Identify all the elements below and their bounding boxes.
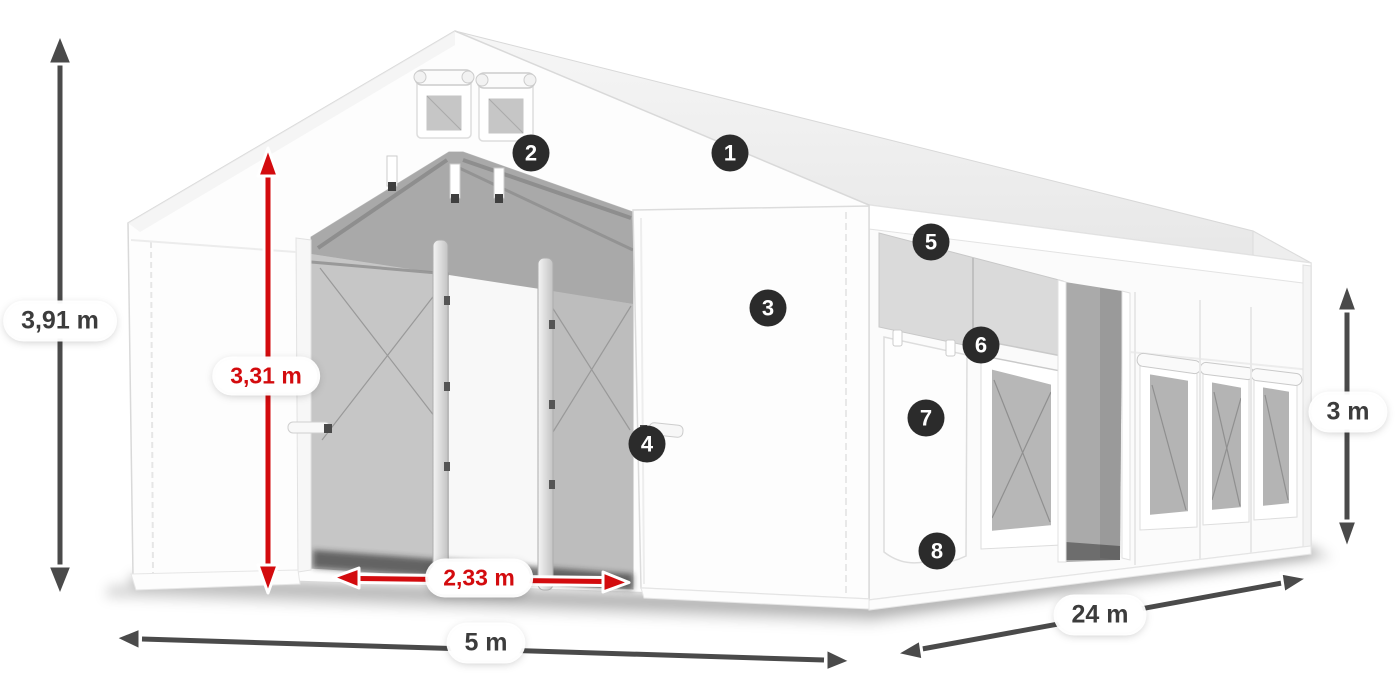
- gable-vent-left: [414, 70, 474, 138]
- side-doorway-open: [1058, 280, 1130, 562]
- entrance-interior: [311, 152, 633, 590]
- dim-label-front-width: 5 m: [449, 626, 522, 661]
- see-through-gap: [449, 275, 540, 586]
- front-right-door-panel: [633, 206, 869, 609]
- interior-mesh-left: [311, 254, 449, 572]
- callout-badge-7: 7: [908, 400, 945, 437]
- callout-badge-3: 3: [750, 290, 787, 327]
- interior-mesh-right: [540, 289, 633, 589]
- dim-label-inner-height: 3,31 m: [215, 360, 317, 393]
- door-pole-left: [433, 240, 450, 573]
- side-window-front: [974, 339, 1069, 549]
- callout-badge-6: 6: [963, 327, 1000, 364]
- dim-label-door-width: 2,33 m: [428, 562, 530, 595]
- tent-dimension-diagram: 3,91 m 3,31 m 2,33 m 5 m 24 m 3 m 1 2 3 …: [0, 0, 1400, 700]
- callout-badge-4: 4: [629, 426, 666, 463]
- gable-vent-right: [476, 73, 536, 141]
- tent-illustration: [0, 0, 1400, 700]
- callout-badge-2: 2: [513, 135, 550, 172]
- dim-label-side-length: 24 m: [1057, 598, 1144, 633]
- dim-label-total-height: 3,91 m: [6, 304, 114, 339]
- callout-badge-1: 1: [712, 135, 749, 172]
- door-pole-right: [538, 258, 555, 590]
- callout-badge-5: 5: [913, 224, 950, 261]
- callout-badge-8: 8: [919, 533, 956, 570]
- dim-label-side-height: 3 m: [1311, 395, 1384, 430]
- side-door-flap: [884, 337, 967, 563]
